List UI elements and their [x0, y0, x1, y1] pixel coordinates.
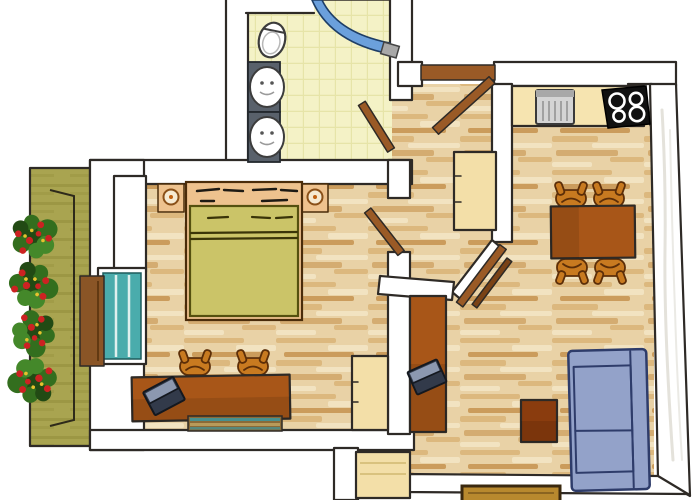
- doormat: [462, 486, 560, 500]
- floor-plan-svg: [0, 0, 700, 500]
- top-wall-left-post: [398, 62, 422, 86]
- balcony-door: [98, 268, 146, 364]
- sofa: [568, 349, 650, 491]
- flower-box-1: [13, 215, 58, 259]
- bedroom-corner-niche: [114, 176, 146, 272]
- dining-table: [551, 206, 636, 259]
- striped-rug: [188, 416, 282, 431]
- washbasin-lower: [248, 112, 284, 162]
- niche-closet: [356, 452, 410, 498]
- nightstand-right: [302, 184, 328, 212]
- bedroom-hall-wall-upper: [388, 160, 410, 198]
- bedroom-bottom-wall: [90, 430, 414, 450]
- double-bed: [186, 182, 302, 320]
- side-table: [521, 400, 557, 442]
- top-wall: [494, 62, 676, 86]
- nightstand-left: [158, 184, 184, 212]
- washbasin-upper: [248, 62, 284, 112]
- bedroom-wardrobe: [352, 356, 388, 430]
- floor-plan-illustration: [0, 0, 700, 500]
- entrance-door-lintel: [421, 65, 495, 80]
- niche-left-wall: [334, 448, 358, 500]
- bathroom-left-wall: [226, 0, 248, 168]
- cooktop: [602, 86, 650, 128]
- steel-sink-unit: [536, 90, 574, 124]
- bathroom-top-strip: [246, 0, 314, 13]
- hall-wardrobe: [454, 152, 496, 230]
- balcony-wood-panel: [80, 276, 104, 366]
- kitchen: [512, 86, 650, 128]
